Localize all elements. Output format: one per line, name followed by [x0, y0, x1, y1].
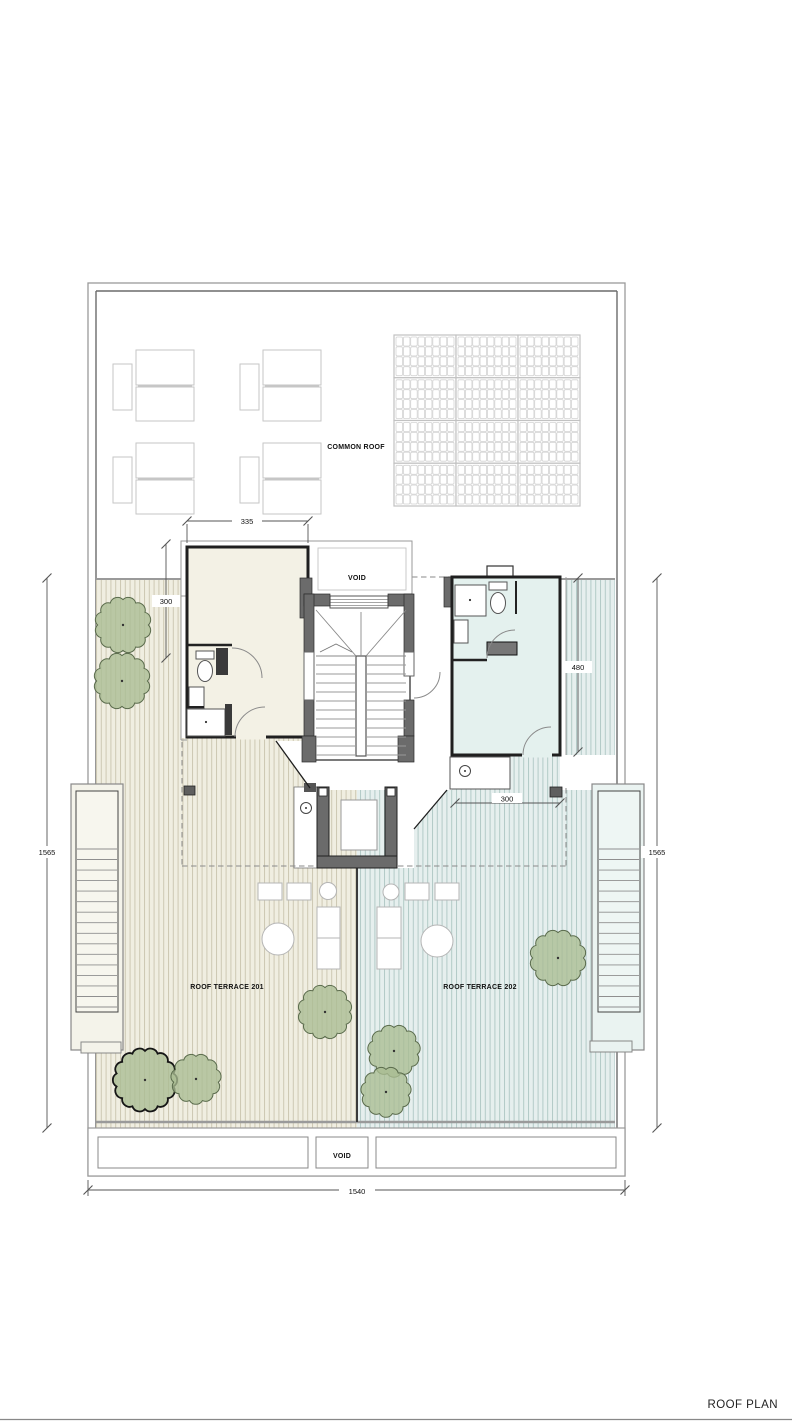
terrace-201-label: ROOF TERRACE 201 [190, 984, 264, 991]
shower-drain [205, 721, 207, 723]
tree-trunk-marker [122, 624, 124, 626]
void-lower-label: VOID [333, 1153, 351, 1160]
lounger [263, 387, 321, 421]
tree-trunk-marker [121, 680, 123, 682]
roof-plan-drawing: COMMON ROOF VOID [0, 0, 792, 1425]
dim-1540: 1540 [349, 1187, 366, 1196]
lounger [263, 350, 321, 385]
terrace-202-label: ROOF TERRACE 202 [443, 984, 517, 991]
lounger-set [240, 443, 321, 514]
dim-1565-right: 1565 [649, 848, 666, 857]
roof-access-room-201 [187, 547, 312, 740]
roof-room-202 [444, 566, 566, 758]
common-roof-label: COMMON ROOF [327, 444, 385, 451]
shower-drain [469, 599, 471, 601]
tree-trunk-marker [324, 1011, 326, 1013]
solar-panel [518, 378, 580, 421]
lounger [263, 480, 321, 514]
side-table [113, 364, 132, 410]
lounger-set [113, 443, 194, 514]
lounger [136, 387, 194, 421]
lower-roof-band: VOID [88, 1128, 625, 1176]
lounger-sets-group [113, 350, 321, 514]
tree-trunk-marker [557, 957, 559, 959]
solar-panel [518, 421, 580, 464]
dim-335: 335 [241, 517, 254, 526]
lounger [136, 480, 194, 514]
door-opening [522, 752, 552, 758]
dim-300-left: 300 [160, 597, 173, 606]
side-table [113, 457, 132, 503]
solar-panel [456, 463, 518, 506]
solar-panel [518, 463, 580, 506]
toilet [489, 582, 507, 614]
side-table [240, 457, 259, 503]
solar-panel [394, 463, 456, 506]
stair-spine [356, 656, 366, 756]
solar-panel [456, 378, 518, 421]
lounger-set [113, 350, 194, 421]
drawing-sheet: COMMON ROOF VOID [0, 0, 792, 1425]
wall-stub [225, 704, 232, 735]
void-upper-label: VOID [348, 575, 366, 582]
solar-panel [518, 335, 580, 378]
tree-trunk-marker [144, 1079, 146, 1081]
solar-panel [394, 335, 456, 378]
lounger-set [240, 350, 321, 421]
solar-panel [456, 421, 518, 464]
wall-stub [216, 648, 228, 675]
door-opening [236, 734, 266, 740]
lounger [136, 350, 194, 385]
solar-panel [394, 421, 456, 464]
dim-1565-left: 1565 [39, 848, 56, 857]
external-stair-east [590, 784, 644, 1052]
tree-trunk-marker [393, 1050, 395, 1052]
solar-panel [456, 335, 518, 378]
round-table [262, 923, 294, 955]
bench [487, 642, 517, 655]
sink [454, 620, 468, 643]
window [304, 652, 314, 700]
tree-trunk-marker [385, 1091, 387, 1093]
lounger [263, 443, 321, 478]
dim-480: 480 [572, 663, 585, 672]
side-table [240, 364, 259, 410]
sheet-title: ROOF PLAN [707, 1399, 778, 1411]
shaft-opening [341, 800, 377, 850]
round-table [421, 925, 453, 957]
entry-grille [330, 596, 388, 608]
external-stair-west [71, 784, 123, 1053]
solar-panel [394, 378, 456, 421]
solar-panel-array [394, 335, 580, 506]
sink [189, 687, 204, 708]
lounger [136, 443, 194, 478]
toilet [196, 651, 214, 682]
tree-trunk-marker [195, 1078, 197, 1080]
dim-300-right: 300 [501, 795, 514, 804]
